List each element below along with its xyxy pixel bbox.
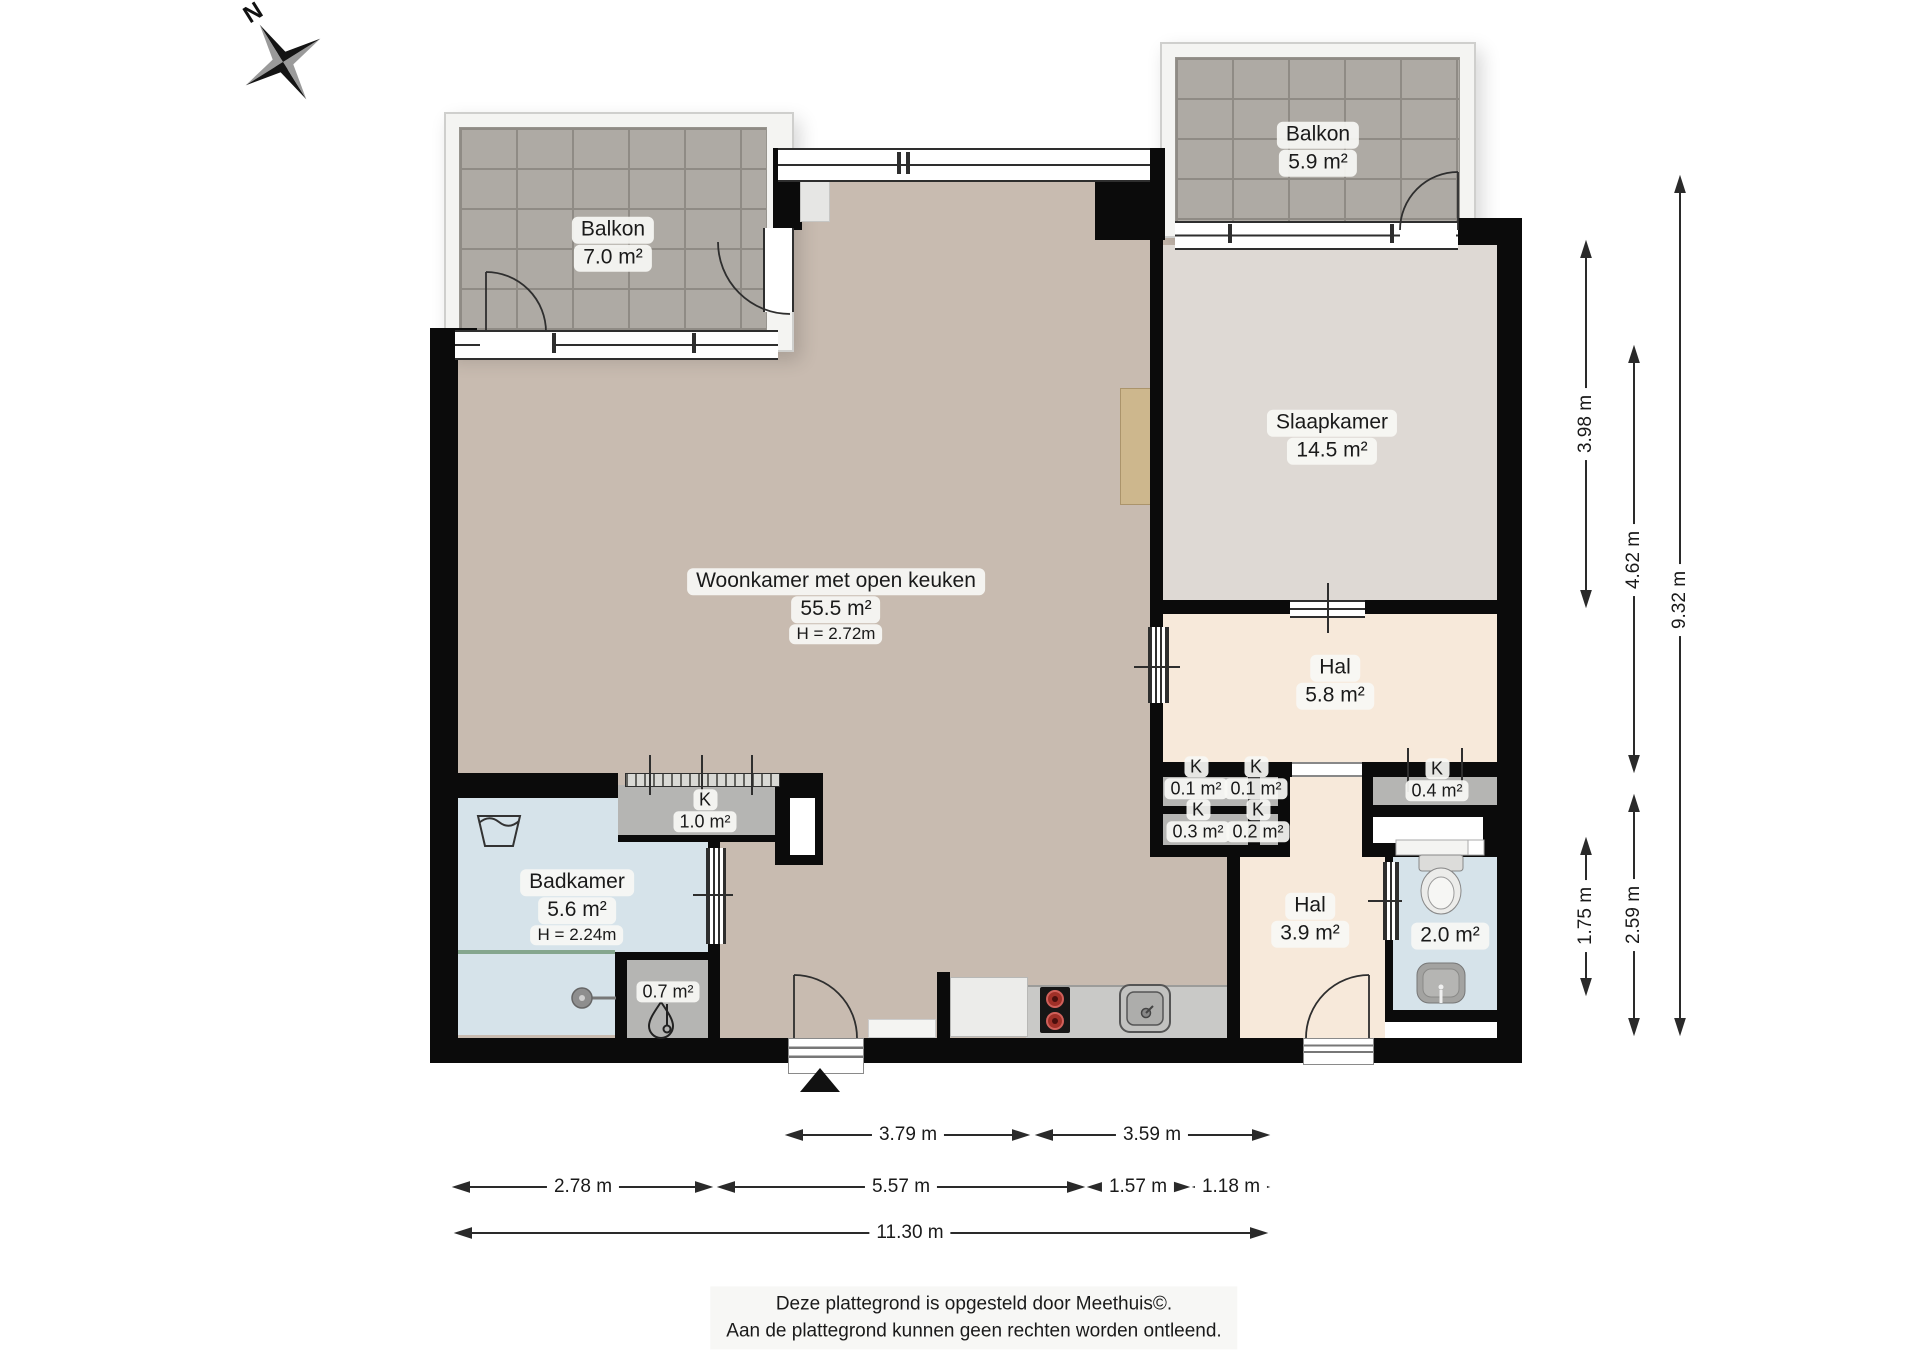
room-name: Hal xyxy=(1285,893,1335,920)
room-area: 5.9 m² xyxy=(1279,150,1357,177)
entrance-mat xyxy=(868,1019,936,1038)
kitchen-stove xyxy=(1040,987,1070,1033)
floorplan-canvas: N xyxy=(0,0,1920,1358)
wall-segment xyxy=(937,972,950,1038)
wall-segment xyxy=(1373,805,1497,817)
dimension-label: 9.32 m xyxy=(1669,564,1691,636)
dimension-label: 1.57 m xyxy=(1102,1176,1174,1198)
room-ceiling-height: H = 2.72m xyxy=(790,624,883,644)
compass-icon: N xyxy=(208,0,344,123)
room-label-kast-e: K 0.2 m² xyxy=(1226,799,1289,842)
window-mullion xyxy=(692,333,696,353)
room-label-kast-b: K 0.1 m² xyxy=(1224,756,1287,799)
room-label-techniek: 0.7 m² xyxy=(636,981,699,1002)
room-area: 5.8 m² xyxy=(1296,683,1374,710)
room-area: 2.0 m² xyxy=(1411,923,1489,950)
window-mullion xyxy=(1228,224,1232,243)
door-bathroom xyxy=(706,848,726,944)
room-name: Balkon xyxy=(572,217,654,244)
room-name: Slaapkamer xyxy=(1267,410,1397,437)
dimension-label: 11.30 m xyxy=(869,1222,950,1244)
room-label-balkon-left: Balkon 7.0 m² xyxy=(572,217,654,272)
room-label-balkon-right: Balkon 5.9 m² xyxy=(1277,122,1359,177)
compass-north-label: N xyxy=(239,0,268,29)
room-ceiling-height: H = 2.24m xyxy=(531,925,624,945)
room-area: 0.1 m² xyxy=(1224,779,1287,800)
sliding-door-bedroom xyxy=(1290,600,1365,618)
room-name: K xyxy=(1184,756,1208,777)
room-label-badkamer: Badkamer 5.6 m² H = 2.24m xyxy=(520,869,634,945)
wall-niche-white xyxy=(790,798,815,855)
room-area: 0.7 m² xyxy=(636,981,699,1002)
room-area: 0.1 m² xyxy=(1164,779,1227,800)
room-label-hal-beneden: Hal 3.9 m² xyxy=(1271,893,1349,948)
window-mullion xyxy=(1390,224,1394,243)
room-name: K xyxy=(693,789,717,810)
louver-closet-kitchen xyxy=(625,773,780,787)
room-area: 55.5 m² xyxy=(791,596,880,623)
room-area: 0.3 m² xyxy=(1166,822,1229,843)
room-area: 0.2 m² xyxy=(1226,822,1289,843)
room-area: 5.6 m² xyxy=(538,897,616,924)
wardrobe-wood xyxy=(1120,388,1152,505)
wall-segment xyxy=(1373,843,1522,857)
footer-line2: Aan de plattegrond kunnen geen rechten w… xyxy=(726,1318,1221,1345)
room-label-woonkamer: Woonkamer met open keuken 55.5 m² H = 2.… xyxy=(687,568,985,644)
room-name: Badkamer xyxy=(520,869,634,896)
window-mullion xyxy=(906,152,910,174)
door-opening-hall-upper xyxy=(1292,762,1362,777)
room-name: K xyxy=(1246,799,1270,820)
wall-segment xyxy=(430,773,618,798)
wall-segment xyxy=(773,178,802,230)
dimension-label: 5.57 m xyxy=(865,1176,937,1198)
wall-segment xyxy=(1458,218,1522,245)
wall-segment xyxy=(1227,857,1240,1038)
entrance-threshold xyxy=(788,1038,864,1074)
window-mullion xyxy=(552,333,556,353)
room-area: 0.4 m² xyxy=(1405,781,1468,802)
dimension-label: 3.59 m xyxy=(1116,1124,1188,1146)
dimension-label: 3.79 m xyxy=(872,1124,944,1146)
wall-segment xyxy=(430,328,458,1063)
room-name: K xyxy=(1186,799,1210,820)
closet-right-niche xyxy=(1373,817,1483,843)
dimension-label: 1.75 m xyxy=(1575,880,1597,952)
wall-segment xyxy=(1150,240,1163,600)
room-area: 3.9 m² xyxy=(1271,921,1349,948)
wall-segment xyxy=(1385,1010,1522,1022)
room-label-toilet: 2.0 m² xyxy=(1411,923,1489,950)
room-name: K xyxy=(1425,758,1449,779)
dimension-label: 3.98 m xyxy=(1575,388,1597,460)
wall-segment xyxy=(1362,762,1373,857)
glass-door-hall xyxy=(1148,627,1169,703)
toilet-niche xyxy=(1393,1022,1497,1038)
room-area: 14.5 m² xyxy=(1287,438,1376,465)
door-frame-balcony-left xyxy=(763,228,794,312)
footer-line1: Deze plattegrond is opgesteld door Meeth… xyxy=(726,1291,1221,1318)
wall-segment xyxy=(1150,845,1290,857)
dimension-label: 4.62 m xyxy=(1623,524,1645,596)
dimension-label: 2.59 m xyxy=(1623,879,1645,951)
hall-door-threshold xyxy=(1303,1038,1374,1065)
door-toilet xyxy=(1383,862,1399,940)
footer-disclaimer: Deze plattegrond is opgesteld door Meeth… xyxy=(710,1286,1237,1349)
room-label-kast-c: K 0.4 m² xyxy=(1405,758,1468,801)
room-label-hal-boven: Hal 5.8 m² xyxy=(1296,655,1374,710)
window-living-top xyxy=(778,148,1150,182)
room-label-kast-a: K 0.1 m² xyxy=(1164,756,1227,799)
dimension-label: 1.18 m xyxy=(1195,1176,1267,1198)
dimension-label: 2.78 m xyxy=(547,1176,619,1198)
wall-segment xyxy=(627,952,710,960)
room-label-kast-keuken: K 1.0 m² xyxy=(673,789,736,832)
floor-bathroom-shower xyxy=(457,953,615,1035)
kitchen-cabinet xyxy=(950,977,1028,1037)
floor-hall-lower xyxy=(1240,857,1385,1038)
room-name: K xyxy=(1244,756,1268,777)
wall-segment xyxy=(1483,817,1497,843)
room-name: Balkon xyxy=(1277,122,1359,149)
room-area: 7.0 m² xyxy=(574,245,652,272)
door-opening-balcony-right xyxy=(1400,223,1456,244)
room-name: Woonkamer met open keuken xyxy=(687,568,985,595)
window-mullion xyxy=(897,152,901,174)
room-label-kast-d: K 0.3 m² xyxy=(1166,799,1229,842)
shower-screen-line xyxy=(457,950,615,954)
room-area: 1.0 m² xyxy=(673,812,736,833)
room-name: Hal xyxy=(1310,655,1360,682)
wall-segment xyxy=(615,952,627,1038)
wall-segment xyxy=(1497,218,1522,1063)
wall-segment xyxy=(618,835,783,842)
room-label-slaapkamer: Slaapkamer 14.5 m² xyxy=(1267,410,1397,465)
door-opening-balcony-left xyxy=(480,332,552,354)
